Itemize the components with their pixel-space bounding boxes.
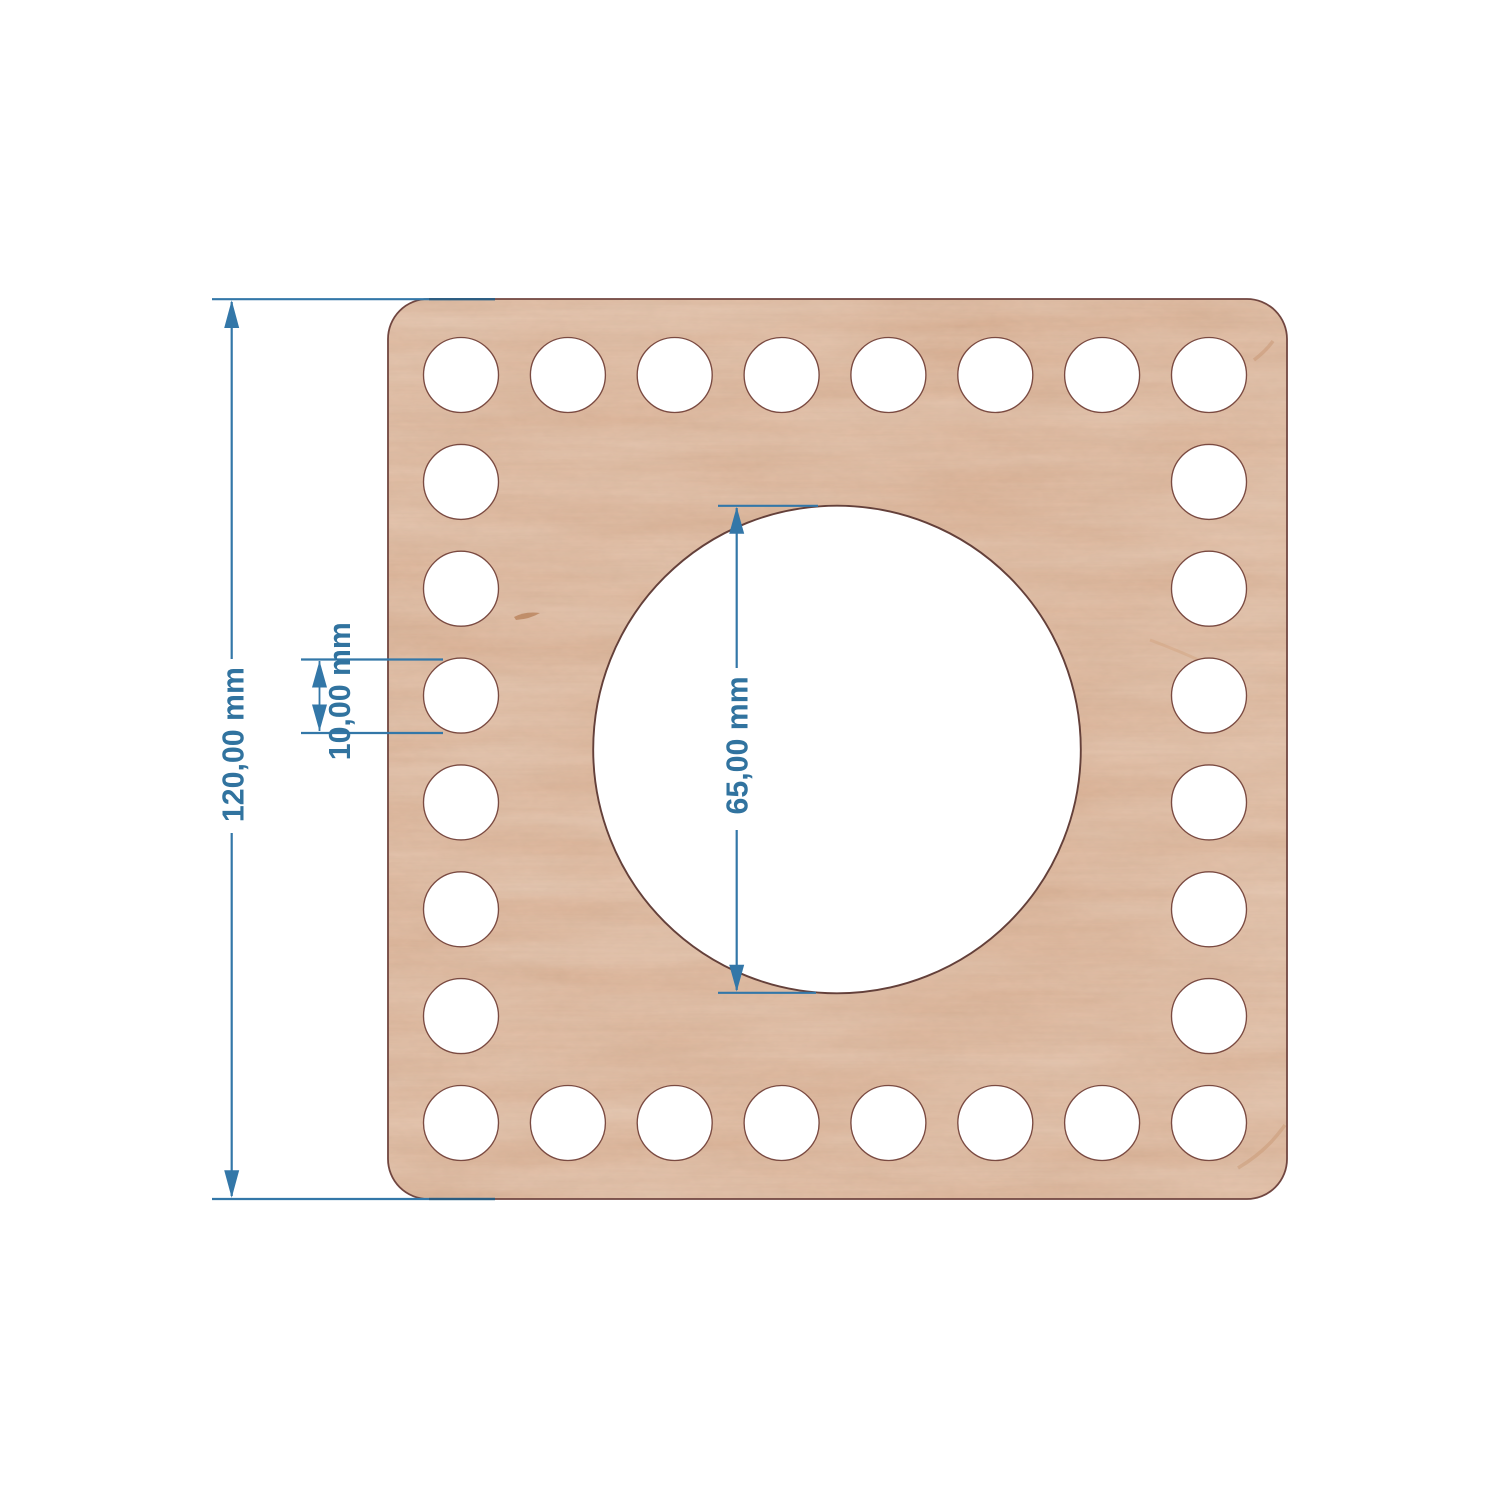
svg-text:10,00 mm: 10,00 mm xyxy=(324,622,357,760)
svg-text:120,00 mm: 120,00 mm xyxy=(218,667,251,822)
svg-text:65,00 mm: 65,00 mm xyxy=(722,676,755,814)
